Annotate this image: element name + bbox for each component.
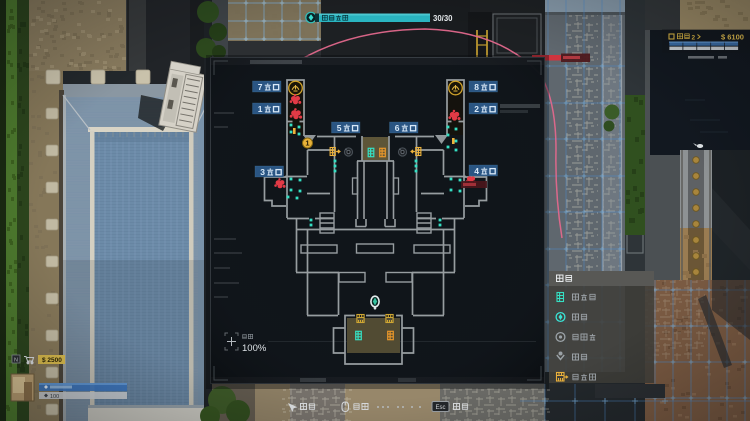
svg-text:100%: 100% bbox=[242, 343, 267, 354]
svg-text:100: 100 bbox=[50, 394, 59, 400]
svg-text:2: 2 bbox=[474, 104, 479, 114]
svg-text:4: 4 bbox=[474, 166, 479, 176]
svg-text:7: 7 bbox=[258, 82, 263, 92]
svg-text:$ 2500: $ 2500 bbox=[42, 357, 62, 364]
svg-text:1: 1 bbox=[305, 139, 309, 148]
svg-text:2: 2 bbox=[692, 34, 696, 41]
svg-text:3: 3 bbox=[260, 167, 265, 177]
svg-text:N: N bbox=[14, 358, 18, 364]
svg-text:8: 8 bbox=[474, 82, 479, 92]
svg-text:Esc: Esc bbox=[435, 405, 445, 411]
svg-text:1: 1 bbox=[258, 104, 263, 114]
svg-text:6: 6 bbox=[395, 123, 400, 133]
svg-text:$ 6100: $ 6100 bbox=[721, 33, 744, 42]
svg-text:30/30: 30/30 bbox=[433, 14, 453, 23]
svg-text:5: 5 bbox=[337, 123, 342, 133]
